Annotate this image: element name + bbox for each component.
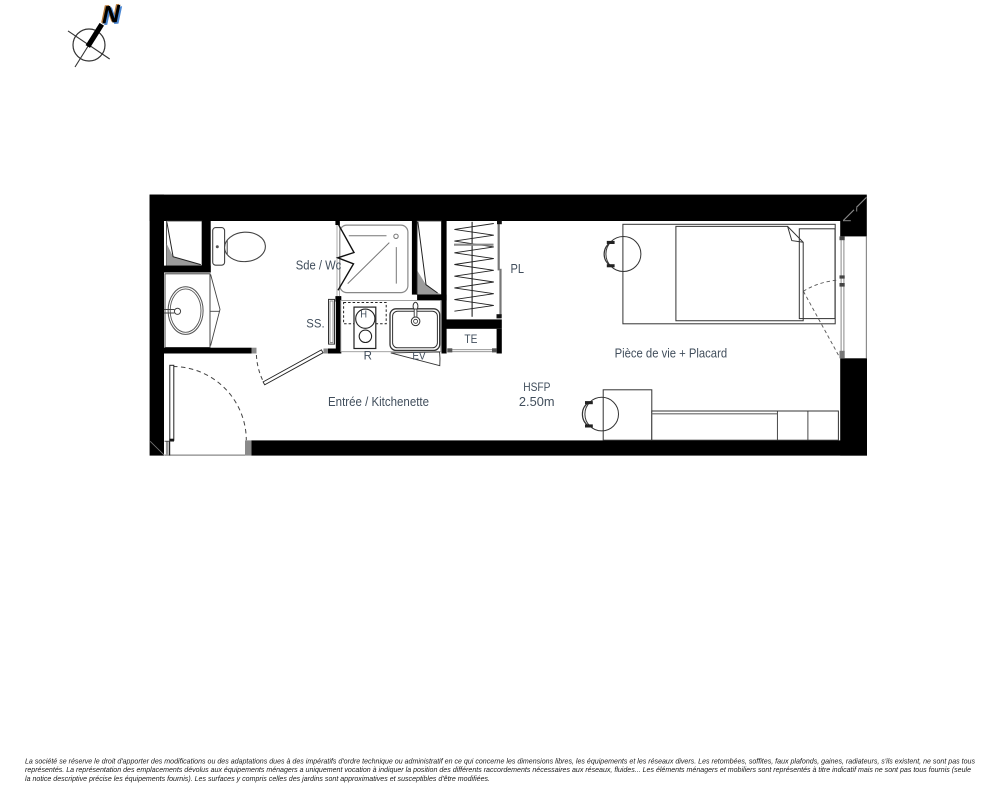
svg-text:représentés. La représentation: représentés. La représentation des empla… [25, 765, 971, 774]
svg-text:Pièce de vie + Placard: Pièce de vie + Placard [615, 345, 728, 360]
svg-text:la notice descriptive précise: la notice descriptive précise les équipe… [25, 774, 490, 783]
svg-text:2.50m: 2.50m [519, 395, 555, 409]
svg-text:PL: PL [511, 262, 525, 276]
svg-text:La société se réserve le droit: La société se réserve le droit d'apporte… [25, 756, 975, 765]
svg-text:TE: TE [464, 332, 477, 346]
svg-text:EV: EV [412, 351, 426, 363]
svg-text:H: H [360, 309, 367, 320]
svg-text:Sde / Wc: Sde / Wc [296, 258, 342, 272]
svg-text:SS.: SS. [306, 317, 324, 331]
svg-text:R: R [364, 350, 372, 362]
svg-text:Entrée / Kitchenette: Entrée / Kitchenette [328, 394, 429, 409]
svg-text:HSFP: HSFP [523, 380, 550, 394]
